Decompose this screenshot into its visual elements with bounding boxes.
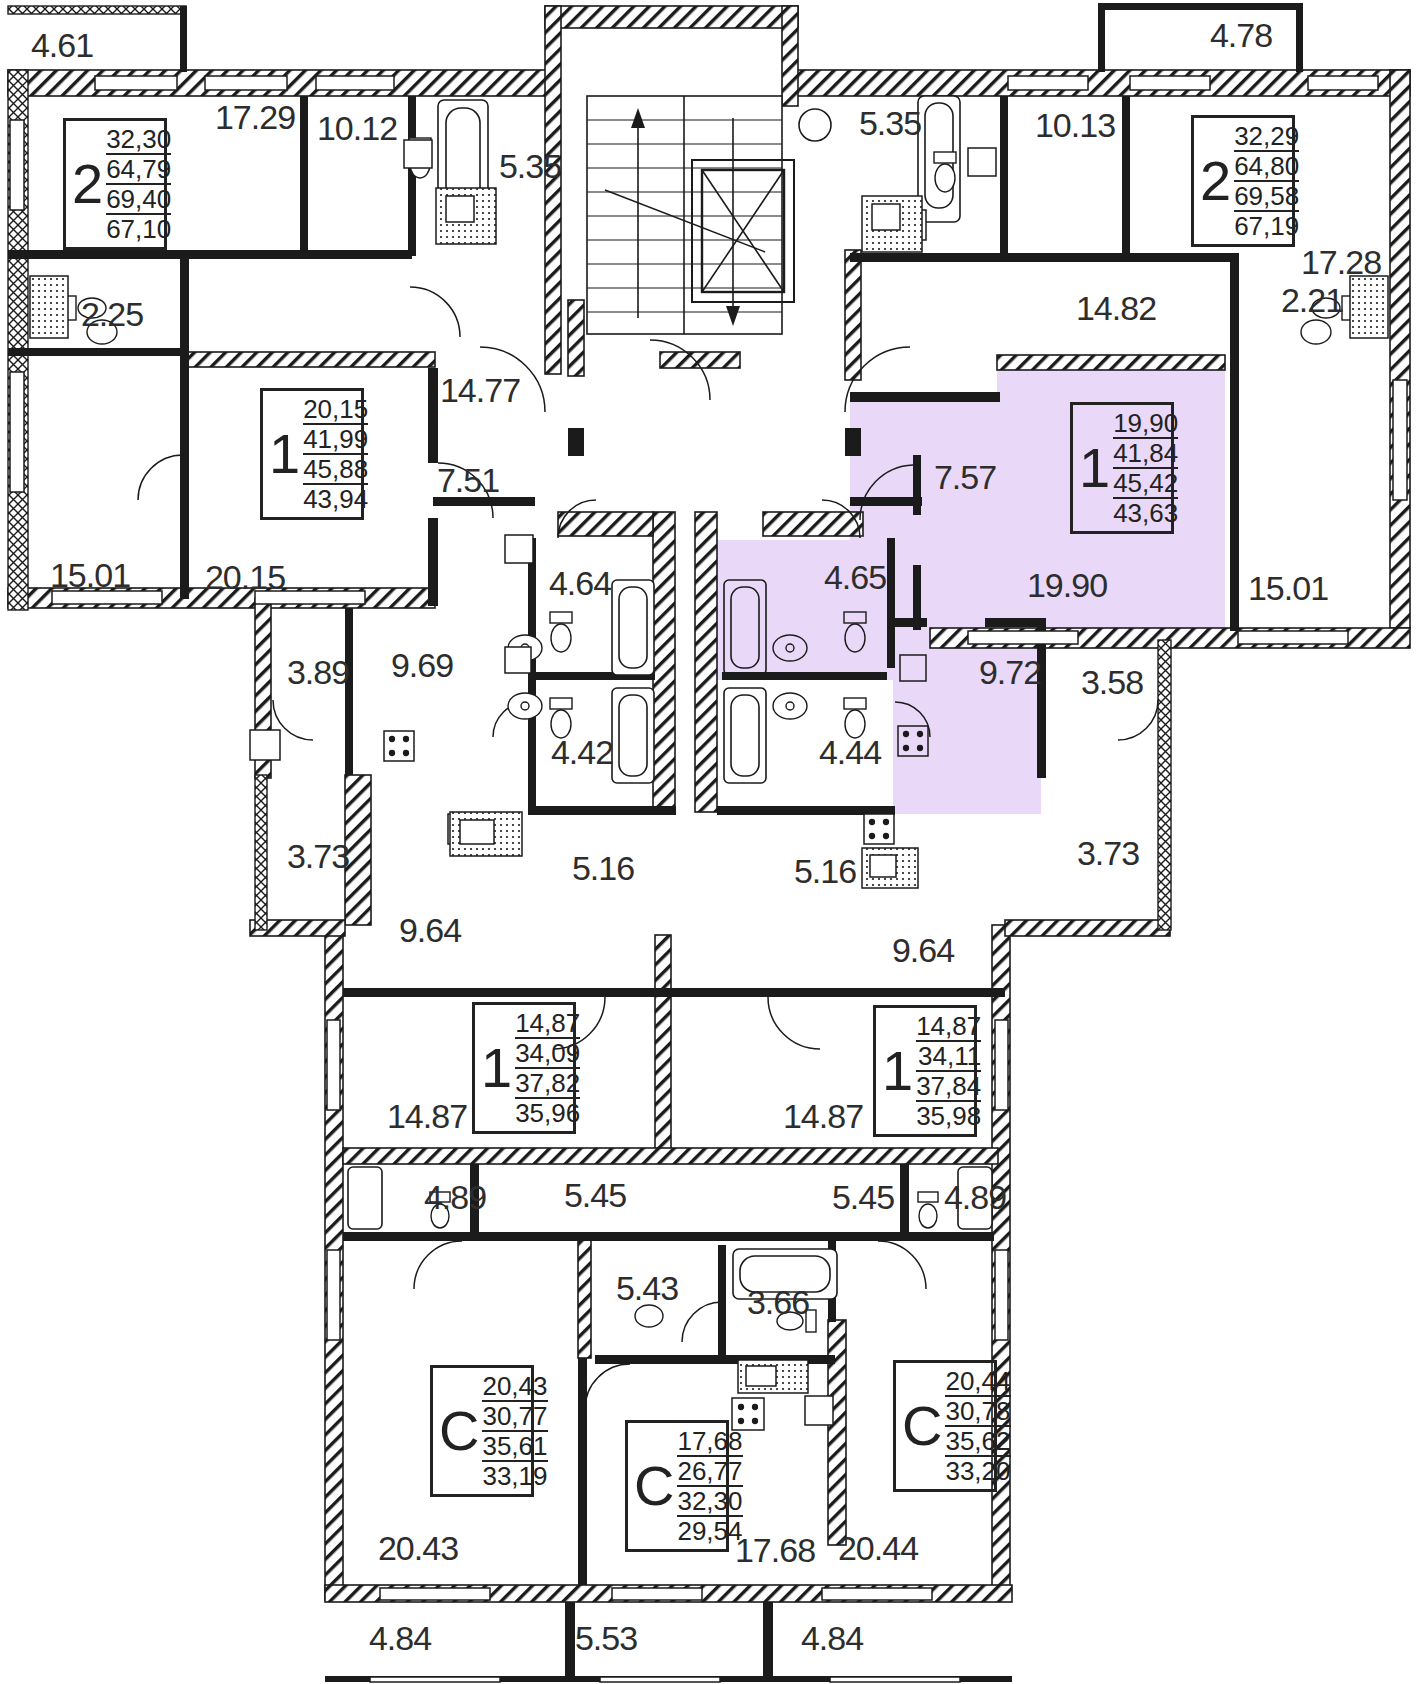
floor-plan-drawing	[0, 0, 1418, 1684]
floor-plan: 4.6117.2910.125.352.2515.0120.1514.777.5…	[0, 0, 1418, 1684]
highlighted-apartment-region[interactable]	[717, 358, 1225, 814]
staircase	[587, 96, 782, 334]
